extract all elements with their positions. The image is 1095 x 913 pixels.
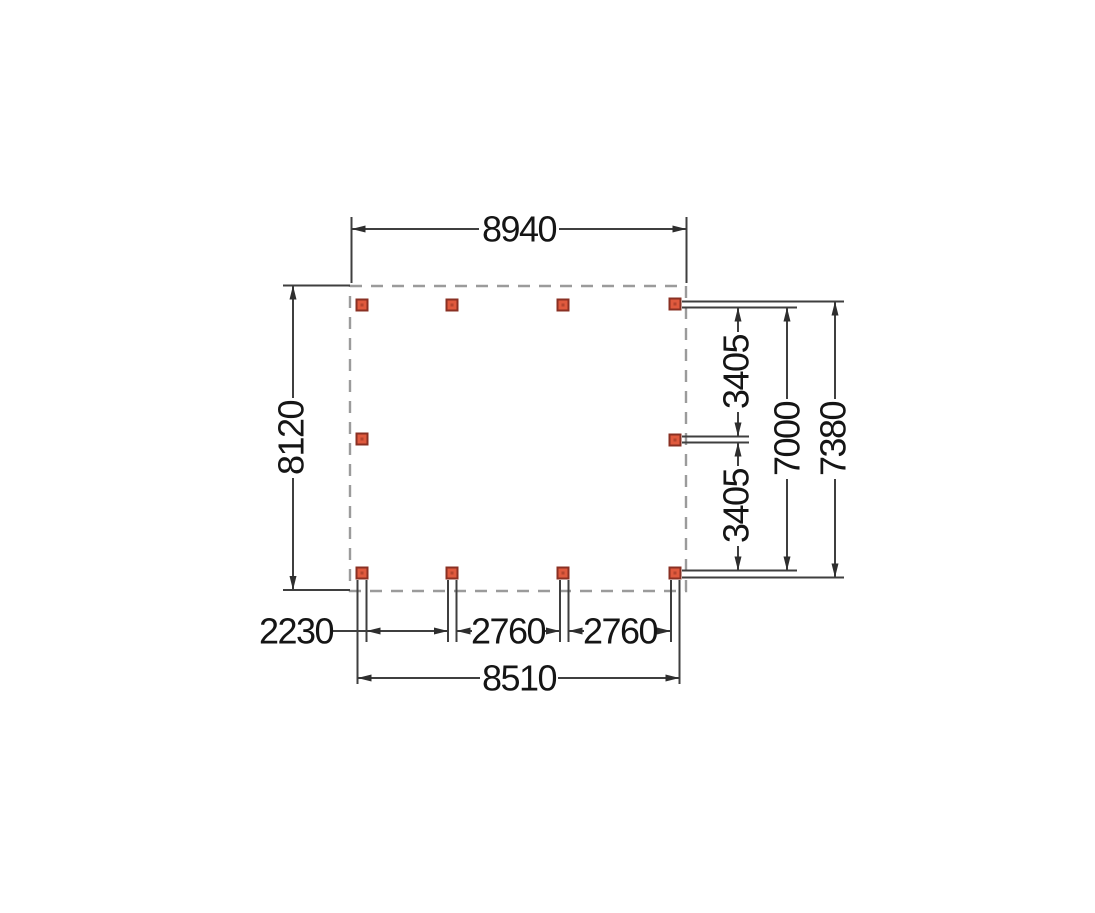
floor-plan-drawing: 8940 8120 3405 3405 7000 7380 2230 2760 … xyxy=(0,0,1095,913)
post-core xyxy=(361,438,364,441)
dim-label-bottom-total: 8510 xyxy=(482,658,557,699)
post-core xyxy=(361,304,364,307)
dim-label-right-upper-bay: 3405 xyxy=(716,334,757,409)
arrowhead xyxy=(290,576,297,590)
arrowhead xyxy=(735,557,742,571)
dim-label-right-outer-total: 7380 xyxy=(813,401,854,476)
arrowhead xyxy=(657,628,671,635)
post-core xyxy=(674,572,677,575)
post-core xyxy=(674,439,677,442)
arrowhead xyxy=(832,564,839,578)
dim-label-right-lower-bay: 3405 xyxy=(716,468,757,543)
arrowhead xyxy=(673,226,687,233)
arrowhead xyxy=(358,675,372,682)
post-core xyxy=(674,303,677,306)
dim-label-top-width: 8940 xyxy=(482,209,557,250)
arrowhead xyxy=(735,308,742,322)
arrowhead xyxy=(832,302,839,316)
arrowhead xyxy=(735,423,742,437)
label-gaps xyxy=(274,212,850,695)
arrowhead xyxy=(367,628,381,635)
canopy-outline-dashed xyxy=(350,286,686,591)
arrowhead xyxy=(546,628,560,635)
arrowhead xyxy=(457,628,471,635)
arrowhead xyxy=(735,443,742,457)
arrowhead xyxy=(784,308,791,322)
posts-layer xyxy=(357,299,681,579)
dimension-labels: 8940 8120 3405 3405 7000 7380 2230 2760 … xyxy=(259,209,854,699)
dimension-lines xyxy=(293,229,835,678)
arrowhead xyxy=(290,286,297,300)
dim-label-right-inner-total: 7000 xyxy=(767,401,808,476)
arrowhead xyxy=(352,226,366,233)
dim-label-bottom-bay-2: 2760 xyxy=(471,611,546,652)
arrowhead xyxy=(666,675,680,682)
post-core xyxy=(451,572,454,575)
arrowhead xyxy=(569,628,583,635)
post-core xyxy=(562,572,565,575)
post-core xyxy=(451,304,454,307)
arrowheads xyxy=(290,226,839,682)
post-core xyxy=(361,572,364,575)
arrowhead xyxy=(784,557,791,571)
post-core xyxy=(562,304,565,307)
dim-label-bottom-bay-3: 2760 xyxy=(583,611,658,652)
floor-plan-canvas: 8940 8120 3405 3405 7000 7380 2230 2760 … xyxy=(0,0,1095,913)
arrowhead xyxy=(434,628,448,635)
dim-label-bottom-bay-1: 2230 xyxy=(259,611,334,652)
dim-label-left-height: 8120 xyxy=(271,400,312,475)
